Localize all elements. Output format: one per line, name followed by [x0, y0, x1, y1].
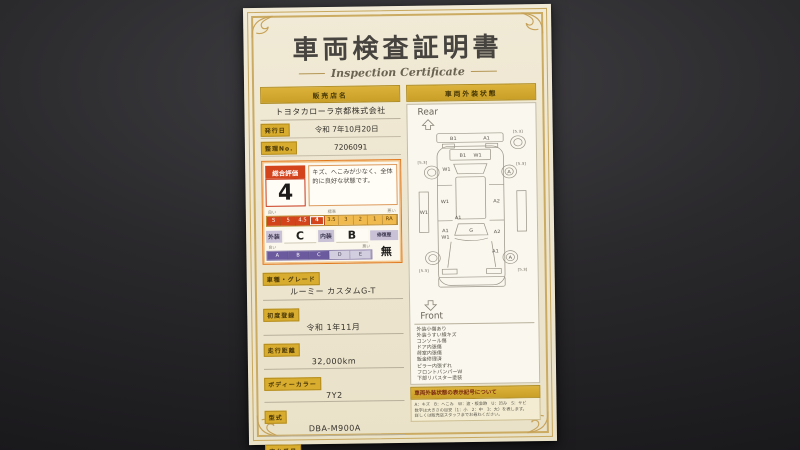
- grade-cell-current: C: [309, 251, 330, 259]
- overall-rating-label: 総合評価: [265, 165, 305, 179]
- grade-scale-row: 良い 悪い A B C D E: [266, 243, 398, 261]
- rating-score-block: 総合評価 4: [265, 165, 306, 207]
- certificate-content: 車両検査証明書 Inspection Certificate 販売店名 トヨタカ…: [259, 17, 541, 432]
- mark-left-front-door-w: W1: [441, 235, 449, 241]
- field-mileage: 走行距離 32,000km: [264, 336, 404, 369]
- subtitle-flourish-left: [299, 73, 325, 74]
- mark-left-front-door-a: A1: [442, 228, 449, 234]
- certificate-document: 車両検査証明書 Inspection Certificate 販売店名 トヨタカ…: [243, 4, 557, 445]
- field-label: 初度登録: [263, 308, 299, 322]
- overall-rating-score: 4: [265, 178, 305, 207]
- issue-date-value: 令和 7年10月20日: [293, 122, 401, 135]
- rear-label: Rear: [417, 106, 531, 118]
- exterior-section-header: 車両外装状態: [406, 83, 536, 102]
- issue-date-row: 発行日 令和 7年10月20日: [261, 121, 401, 138]
- condition-legend: 外装小傷あり 外装うすい線キズ コンソール傷 ドア内張傷 荷室内張傷 鈑金修理済…: [414, 322, 535, 382]
- scale-cell: 3.5: [325, 215, 340, 224]
- serial-no-row: 整理No. 7206091: [261, 139, 401, 156]
- front-direction: Front: [420, 297, 534, 322]
- field-value: ルーミー カスタムG-T: [263, 284, 403, 300]
- vehicle-info-column: 販売店名 トヨタカローラ京都株式会社 発行日 令和 7年10月20日 整理No.…: [260, 85, 407, 450]
- grade-cell: B: [288, 251, 309, 259]
- symbol-explanation: 車両外装状態の表示記号について A：キズ B：へこみ W：波・板金跡 U：凹み …: [410, 385, 540, 422]
- grade-label-bad: 悪い: [362, 243, 370, 249]
- serial-no-label: 整理No.: [261, 141, 298, 155]
- scale-cell: 3: [339, 215, 354, 224]
- mark-right-rear-wheel: A: [507, 169, 511, 175]
- grade-cell: E: [351, 250, 372, 258]
- grade-label-good: 良い: [268, 245, 276, 251]
- mark-left-strip: W1: [420, 210, 428, 216]
- tread-depth-rear-left: [5.3]: [417, 160, 427, 165]
- mark-left-rocker: A1: [455, 215, 462, 221]
- page-subtitle: Inspection Certificate: [331, 65, 465, 80]
- rear-direction: Rear: [417, 106, 531, 131]
- scale-cell: RA: [382, 215, 397, 224]
- scale-label-mid: 標準: [328, 208, 336, 214]
- serial-no-value: 7206091: [300, 141, 401, 151]
- field-value: 7Y2: [264, 388, 404, 402]
- arrow-down-icon: [424, 299, 437, 311]
- subtitle-flourish-right: [471, 71, 497, 72]
- symbol-note-line: 詳しくは販売店スタッフまでお尋ねください。: [415, 411, 537, 418]
- mark-tailgate-right: W1: [473, 153, 481, 159]
- exterior-interior-row: 外装 C 内装 B 修復歴: [266, 228, 398, 244]
- tread-depth-front-right: [5.3]: [518, 267, 528, 272]
- mark-windshield: G: [469, 228, 473, 234]
- scale-cell: 4.5: [296, 216, 311, 225]
- exterior-diagram-panel: Rear: [406, 102, 540, 385]
- field-body-color: ボディーカラー 7Y2: [264, 369, 404, 402]
- rating-scale-strip: S 5 4.5 4 3.5 3 2 1 RA: [266, 214, 398, 227]
- exterior-condition-column: 車両外装状態 Rear: [406, 83, 543, 450]
- scale-cell: 1: [368, 215, 383, 224]
- field-model-grade: 車種・グレード ルーミー カスタムG-T: [263, 265, 403, 300]
- scale-label-good: 良い: [268, 209, 276, 215]
- dealer-name: トヨタカローラ京都株式会社: [260, 102, 400, 121]
- mark-right-front-door: A2: [494, 229, 501, 235]
- grade-cell: D: [330, 251, 351, 259]
- field-value: 令和 1年11月: [263, 319, 403, 335]
- interior-grade-value: B: [336, 228, 369, 242]
- field-value: DBA-M900A: [265, 422, 405, 436]
- mark-tailgate-left: B1: [459, 153, 466, 159]
- tread-depth-spare: [5.3]: [513, 129, 523, 133]
- car-top-view-diagram: B1 A1 B1 W1 W1 W1 W1 A1 W1 A1 A2: [413, 129, 533, 299]
- mark-rear-bumper-right: A1: [483, 136, 490, 142]
- symbol-explanation-body: A：キズ B：へこみ W：波・板金跡 U：凹み S：サビ 数字は大きさの目安（1…: [410, 398, 540, 422]
- field-value: 32,000km: [264, 355, 404, 369]
- interior-grade-label: 内装: [318, 229, 334, 241]
- grade-scale-strip: A B C D E: [266, 249, 372, 260]
- field-label: 型式: [265, 411, 287, 424]
- scale-label-bad: 悪い: [387, 208, 395, 214]
- scale-cell: 2: [353, 215, 368, 224]
- field-label: 車種・グレード: [263, 272, 320, 286]
- mark-right-front-wheel: A: [509, 255, 513, 261]
- field-label: 走行距離: [264, 343, 300, 357]
- mark-left-rear-door: W1: [441, 199, 449, 205]
- issue-date-label: 発行日: [261, 123, 290, 136]
- tread-depth-front-left: [5.3]: [419, 268, 429, 273]
- legend-item: 下部リバスター塗装: [417, 374, 535, 382]
- overall-rating-box: 総合評価 4 キズ、へこみが少なく、全体的に良好な状態です。 良い 標準 悪い …: [261, 159, 402, 265]
- field-chassis-no: 車台番号 XXXXXXX402: [265, 436, 405, 450]
- subtitle-row: Inspection Certificate: [260, 64, 536, 81]
- front-label: Front: [420, 310, 534, 322]
- mark-left-quarter: W1: [442, 167, 450, 173]
- exterior-grade-value: C: [284, 229, 317, 243]
- repair-history-label: 修復歴: [370, 230, 398, 240]
- arrow-up-icon: [422, 119, 435, 131]
- exterior-grade-label: 外装: [266, 230, 282, 242]
- field-first-registration: 初度登録 令和 1年11月: [263, 300, 403, 335]
- field-label: 車台番号: [265, 444, 301, 450]
- scale-cell: 5: [281, 216, 296, 225]
- field-label: ボディーカラー: [264, 377, 321, 391]
- grade-scale-block: 良い 悪い A B C D E: [266, 243, 372, 260]
- field-model-code: 型式 DBA-M900A: [265, 403, 405, 436]
- repair-history-value: 無: [374, 243, 398, 259]
- rating-comment: キズ、へこみが少なく、全体的に良好な状態です。: [308, 164, 398, 206]
- mark-right-rear-door: A2: [493, 199, 500, 205]
- mark-front-right: A1: [492, 249, 499, 255]
- rating-top-row: 総合評価 4 キズ、へこみが少なく、全体的に良好な状態です。: [265, 164, 398, 207]
- scale-cell-current: 4: [310, 216, 325, 225]
- two-column-layout: 販売店名 トヨタカローラ京都株式会社 発行日 令和 7年10月20日 整理No.…: [260, 83, 543, 450]
- dealer-section-header: 販売店名: [260, 85, 400, 104]
- mark-rear-bumper-left: B1: [450, 136, 457, 142]
- scale-cell: S: [267, 216, 282, 225]
- photo-background: 車両検査証明書 Inspection Certificate 販売店名 トヨタカ…: [0, 0, 800, 450]
- tread-depth-rear-right: [5.3]: [516, 161, 526, 166]
- grade-cell: A: [267, 252, 288, 260]
- page-title: 車両検査証明書: [259, 26, 535, 67]
